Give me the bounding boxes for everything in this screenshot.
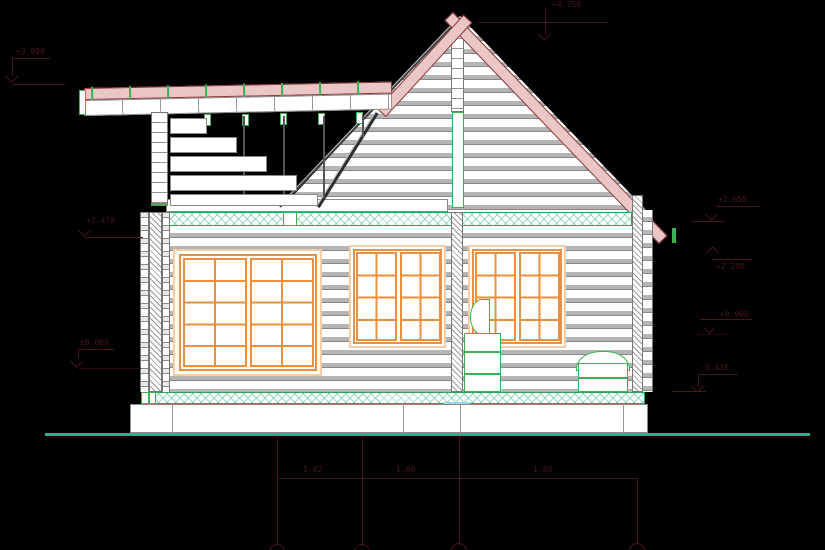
washstand-mirror	[470, 299, 490, 335]
level-line	[78, 349, 114, 350]
dimension-line	[277, 478, 637, 479]
level-line	[12, 58, 50, 59]
grid-bubble	[451, 543, 467, 550]
foundation	[130, 404, 648, 433]
level-label-eave-left: +2.470	[86, 217, 115, 225]
porch-purlin	[170, 175, 297, 191]
window-right-sash	[519, 252, 560, 341]
porch-roof-seam	[281, 83, 283, 97]
washstand-cabinet	[464, 333, 501, 392]
porch-roof-seam	[319, 82, 321, 96]
extension-line	[362, 438, 363, 545]
window-left-sash	[250, 258, 314, 367]
porch-strut	[283, 116, 285, 206]
window-left-sash	[183, 258, 247, 367]
porch-purlin	[170, 194, 318, 206]
center-hatched-column	[451, 212, 463, 392]
porch-roof-seam	[167, 85, 169, 99]
porch-roof-seam	[243, 84, 245, 98]
grid-bubble	[269, 544, 285, 550]
level-arrow	[538, 28, 551, 41]
level-label-window-head: +2.200	[716, 263, 745, 271]
dimension-value: 1.86	[533, 466, 552, 474]
elevation-drawing: +3.080 +4.750 +2.470 ±0.000 +2.650 +2.20…	[0, 0, 825, 550]
level-label-ridge: +4.750	[552, 1, 581, 9]
sill-band	[141, 392, 645, 404]
bench-body	[578, 363, 628, 392]
level-line-dotted	[78, 368, 141, 369]
corner-log-ends-left	[140, 212, 149, 392]
porch-roof-seam	[205, 84, 207, 98]
extension-line	[277, 438, 278, 545]
level-line	[692, 221, 724, 222]
porch-strut	[323, 116, 325, 198]
porch-roof-seam	[91, 87, 93, 101]
dimension-value: 1.82	[303, 466, 322, 474]
porch-strut	[362, 116, 364, 138]
level-arrow	[705, 208, 718, 221]
foundation-joint	[172, 404, 173, 433]
eave-band-block	[283, 212, 297, 226]
porch-purlin	[170, 118, 207, 134]
porch-post	[151, 112, 168, 206]
grid-bubble	[629, 543, 645, 550]
level-line	[478, 22, 608, 23]
level-line	[672, 391, 706, 392]
level-arrow	[70, 355, 83, 368]
foundation-joint	[460, 404, 461, 433]
level-label-floor: ±0.000	[80, 339, 109, 347]
level-line	[700, 319, 752, 320]
level-arrow	[706, 246, 719, 259]
porch-roof-seam	[129, 86, 131, 100]
level-label-sill: +0.900	[720, 311, 749, 319]
window-middle-sash	[356, 252, 397, 341]
level-line	[712, 259, 752, 260]
level-arrow	[703, 321, 716, 334]
porch-purlin	[170, 137, 237, 153]
level-arrow	[5, 70, 18, 83]
level-label-porch-roof: +3.080	[16, 48, 45, 56]
extension-line	[459, 436, 460, 545]
ground-line	[45, 433, 810, 436]
porch-purlin	[170, 156, 267, 172]
eave-band	[141, 212, 632, 226]
dimension-value: 1.00	[396, 466, 415, 474]
level-label-plinth: -0.430	[700, 364, 729, 372]
level-arrow	[78, 224, 91, 237]
porch-roof-seam	[357, 81, 359, 95]
level-line	[716, 206, 760, 207]
corner-hatched-column-right	[632, 195, 643, 392]
porch-fascia-end-cap	[79, 90, 86, 115]
level-line-dotted	[698, 334, 728, 335]
porch-post-base	[151, 203, 168, 206]
foundation-joint	[623, 404, 624, 433]
roof-eave-cap	[672, 228, 676, 243]
grid-bubble	[354, 544, 370, 550]
window-middle-sash	[400, 252, 441, 341]
corner-log-ends-left-inner	[162, 212, 170, 392]
level-line	[698, 374, 738, 375]
level-label-eave-right: +2.650	[718, 196, 747, 204]
sill-band-block	[141, 392, 149, 404]
gable-green-strip	[452, 112, 464, 208]
corner-hatch-left	[149, 212, 162, 392]
extension-line	[637, 478, 638, 545]
foundation-joint	[403, 404, 404, 433]
log-wall-right-strip	[643, 210, 653, 392]
level-line	[12, 84, 65, 85]
level-line	[85, 237, 143, 238]
sill-band-block	[149, 392, 156, 404]
